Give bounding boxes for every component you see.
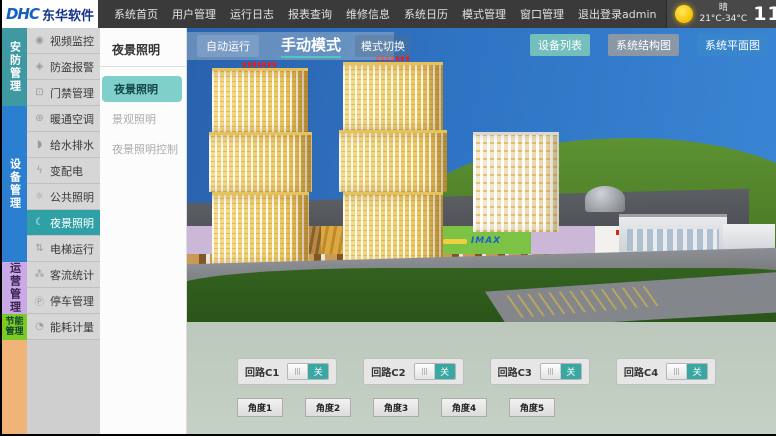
sidebar-item-access-control[interactable]: ⊡ 门禁管理	[27, 80, 100, 106]
weather-condition: 晴	[719, 3, 728, 14]
clock-time: 11:23	[753, 3, 776, 25]
tower-left-segment	[209, 132, 312, 192]
circuit-c1-label: 回路C1	[245, 364, 279, 379]
device-list-button[interactable]: 设备列表	[530, 34, 590, 56]
tower-left-segment	[212, 68, 308, 132]
temperature-range: 21°C-34°C	[699, 14, 747, 25]
user-area: admin 晴 21°C-34°C 11:23 星期一 2015-6-15	[622, 0, 776, 28]
angle-buttons: 角度1 角度2 角度3 角度4 角度5	[237, 398, 555, 417]
lock-icon: ⊡	[34, 87, 45, 98]
tower-right-segment	[343, 192, 443, 266]
lightning-icon: ϟ	[34, 165, 45, 176]
toggle-knob	[415, 364, 435, 379]
people-icon: ⁂	[34, 269, 45, 280]
mode-switch-button[interactable]: 模式切换	[355, 35, 411, 57]
logo-dhc-text: DHC	[6, 5, 39, 23]
toggle-knob	[288, 364, 308, 379]
sidebar-item-water-supply-drainage[interactable]: ◗ 给水排水	[27, 132, 100, 158]
circuit-c2-toggle[interactable]: 关	[414, 363, 456, 380]
circuit-c1-state: 关	[308, 364, 328, 379]
menu-item-logout[interactable]: 退出登录	[578, 6, 622, 22]
sidebar-item-public-lighting[interactable]: ☼ 公共照明	[27, 184, 100, 210]
tower-left	[207, 62, 313, 264]
menu-item-mode-mgmt[interactable]: 模式管理	[462, 6, 506, 22]
angle-3-button[interactable]: 角度3	[373, 398, 419, 417]
menu-item-window-mgmt[interactable]: 窗口管理	[520, 6, 564, 22]
circuit-c4-toggle[interactable]: 关	[666, 363, 708, 380]
shield-icon: ◈	[34, 61, 45, 72]
parking-icon: Ⓟ	[34, 293, 45, 308]
sun-icon	[675, 5, 693, 23]
water-drop-icon: ◗	[34, 139, 45, 150]
mall-dome	[585, 186, 625, 212]
circuit-c1-toggle[interactable]: 关	[287, 363, 329, 380]
sidebar-item-passenger-flow[interactable]: ⁂ 客流统计	[27, 262, 100, 288]
light-icon: ☼	[34, 191, 45, 202]
top-bar: DHC 东华软件 系统首页 用户管理 运行日志 报表查询 维修信息 系统日历 模…	[2, 0, 776, 28]
elevator-icon: ⇅	[34, 243, 45, 254]
sidebar-item-parking-mgmt[interactable]: Ⓟ 停车管理	[27, 288, 100, 314]
circuit-c2-group: 回路C2 关	[363, 358, 463, 385]
mode-bar: 自动运行 手动模式 模式切换	[187, 32, 394, 60]
sidebar-category-operations[interactable]: 运营管理	[2, 262, 27, 314]
system-structure-button[interactable]: 系统结构图	[608, 34, 679, 56]
circuit-controls: 回路C1 关 回路C2 关 回路C3	[237, 358, 716, 385]
angle-2-button[interactable]: 角度2	[305, 398, 351, 417]
main-menu: 系统首页 用户管理 运行日志 报表查询 维修信息 系统日历 模式管理 窗口管理 …	[98, 0, 622, 28]
circuit-c3-label: 回路C3	[498, 364, 532, 379]
fan-icon: ⊛	[34, 113, 45, 124]
camera-icon: ◉	[34, 35, 45, 46]
circuit-c4-group: 回路C4 关	[616, 358, 716, 385]
weather-panel: 晴 21°C-34°C 11:23 星期一 2015-6-15	[666, 0, 776, 28]
company-logo: DHC 东华软件	[2, 0, 98, 28]
subnav-title: 夜景照明	[100, 28, 186, 66]
subnav-item-night-lighting-control[interactable]: 夜景照明控制	[100, 136, 186, 162]
sidebar-category-security[interactable]: 安防管理	[2, 28, 27, 106]
menu-item-maintenance-info[interactable]: 维修信息	[346, 6, 390, 22]
mid-rise-building	[473, 132, 559, 232]
tower-right	[337, 56, 449, 266]
circuit-c2-state: 关	[435, 364, 455, 379]
main-viewport: IMAX	[187, 28, 776, 436]
circuit-c4-label: 回路C4	[624, 364, 658, 379]
sidebar-item-energy-metering[interactable]: ◔ 能耗计量	[27, 314, 100, 340]
tower-right-segment	[339, 130, 447, 192]
angle-1-button[interactable]: 角度1	[237, 398, 283, 417]
circuit-c3-state: 关	[561, 364, 581, 379]
tower-left-roof-sign	[243, 62, 277, 67]
circuit-c4-state: 关	[687, 364, 707, 379]
view-buttons: 设备列表 系统结构图 系统平面图	[530, 34, 768, 56]
menu-item-system-calendar[interactable]: 系统日历	[404, 6, 448, 22]
bms-application: DHC 东华软件 系统首页 用户管理 运行日志 报表查询 维修信息 系统日历 模…	[0, 0, 776, 436]
menu-item-run-log[interactable]: 运行日志	[230, 6, 274, 22]
moon-icon: ☾	[34, 217, 45, 228]
sidebar-nav: 安防管理 ◉ 视频监控 ◈ 防盗报警 ⊡ 门禁管理	[2, 28, 100, 436]
toggle-knob	[541, 364, 561, 379]
imax-sign: IMAX	[471, 236, 501, 246]
weather-condition-block: 晴 21°C-34°C	[699, 3, 747, 26]
sidebar-filler-strip	[2, 340, 27, 436]
toggle-knob	[667, 364, 687, 379]
angle-5-button[interactable]: 角度5	[509, 398, 555, 417]
username-label: admin	[622, 8, 656, 21]
sidebar-category-equipment[interactable]: 设备管理	[2, 106, 27, 262]
tower-left-segment	[212, 192, 309, 264]
sidebar-item-hvac[interactable]: ⊛ 暖通空调	[27, 106, 100, 132]
menu-item-home[interactable]: 系统首页	[114, 6, 158, 22]
menu-item-user-mgmt[interactable]: 用户管理	[172, 6, 216, 22]
sidebar-item-elevator-operation[interactable]: ⇅ 电梯运行	[27, 236, 100, 262]
sidebar-item-night-lighting[interactable]: ☾ 夜景照明	[27, 210, 100, 236]
meter-icon: ◔	[34, 321, 45, 332]
subnav-divider	[100, 66, 186, 67]
sidebar-category-energy-saving[interactable]: 节能管理	[2, 314, 27, 340]
tower-right-segment	[343, 62, 443, 130]
circuit-c1-group: 回路C1 关	[237, 358, 337, 385]
system-plan-button[interactable]: 系统平面图	[697, 34, 768, 56]
auto-run-button[interactable]: 自动运行	[197, 35, 259, 57]
circuit-c3-toggle[interactable]: 关	[540, 363, 582, 380]
subnav-item-night-lighting[interactable]: 夜景照明	[102, 76, 182, 102]
circuit-c2-label: 回路C2	[371, 364, 405, 379]
subnav-panel: 夜景照明 夜景照明 景观照明 夜景照明控制	[100, 28, 187, 436]
annex-windows	[627, 229, 719, 251]
circuit-c3-group: 回路C3 关	[490, 358, 590, 385]
subnav-item-landscape-lighting[interactable]: 景观照明	[100, 106, 186, 132]
menu-item-report-query[interactable]: 报表查询	[288, 6, 332, 22]
sidebar-item-video-surveillance[interactable]: ◉ 视频监控	[27, 28, 100, 54]
angle-4-button[interactable]: 角度4	[441, 398, 487, 417]
current-mode-label: 手动模式	[281, 34, 341, 58]
sidebar-filler	[27, 340, 100, 436]
logo-company-text: 东华软件	[42, 5, 94, 24]
sidebar-item-burglar-alarm[interactable]: ◈ 防盗报警	[27, 54, 100, 80]
sidebar-item-power-distribution[interactable]: ϟ 变配电	[27, 158, 100, 184]
